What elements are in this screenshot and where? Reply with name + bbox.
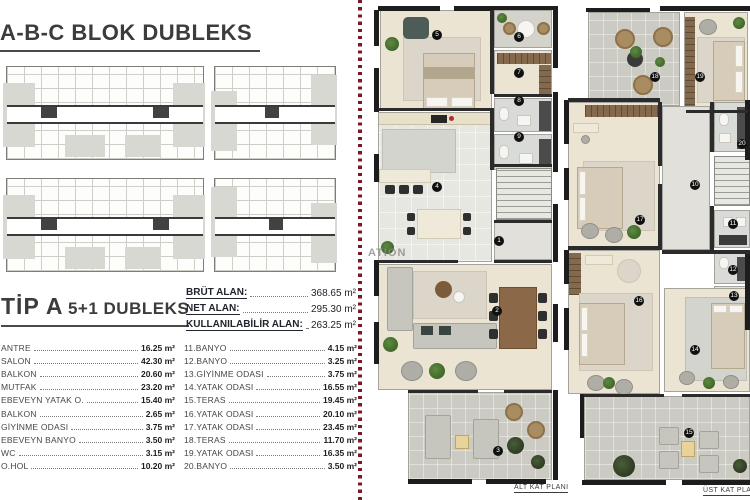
room-row: 14.YATAK ODASI16.55 m²	[184, 379, 357, 392]
room-label: EBEVEYN BANYO	[1, 435, 76, 445]
pillow	[713, 305, 727, 313]
room-label: GİYİNME ODASI	[1, 422, 68, 432]
coffee-table	[435, 281, 452, 298]
schematic-wing	[125, 135, 161, 157]
room-label: SALON	[1, 356, 31, 366]
dotted-leader	[267, 376, 325, 377]
room-label: BALKON	[1, 409, 37, 419]
toilet	[499, 107, 509, 121]
room-bath-11	[714, 210, 750, 248]
room-label: 11.BANYO	[184, 343, 227, 353]
room-lower-terrace	[408, 392, 552, 480]
rug	[413, 271, 487, 319]
dotted-leader	[71, 429, 142, 430]
wall	[660, 6, 686, 11]
room-bedroom-19	[684, 12, 748, 112]
dining-chair	[538, 293, 547, 303]
wall	[553, 92, 558, 172]
room-row: ANTRE16.25 m²	[1, 340, 175, 353]
wall	[568, 98, 660, 102]
wall	[504, 390, 552, 393]
room-label: O.HOL	[1, 461, 28, 471]
watermark-text: ATION	[368, 247, 406, 259]
wall	[745, 100, 750, 160]
wall	[658, 102, 662, 166]
armchair	[699, 19, 717, 35]
stat-row: NET ALAN: 295.30 m²	[186, 299, 356, 315]
schematic-plan-4	[214, 178, 336, 272]
plant	[733, 459, 747, 473]
sofa	[387, 267, 413, 331]
room-label: 18.TERAS	[184, 435, 226, 445]
wall	[553, 204, 558, 262]
room-list-right: 11.BANYO4.15 m² 12.BANYO3.25 m² 13.GİYİN…	[184, 340, 357, 471]
pillow	[426, 97, 448, 107]
room-label: 20.BANYO	[184, 461, 227, 471]
dining-chair	[489, 329, 498, 339]
wall	[553, 304, 558, 342]
room-area: 20.60 m²	[141, 369, 175, 379]
wardrobe	[685, 17, 695, 111]
dining-chair	[489, 293, 498, 303]
rattan-chair	[505, 403, 523, 421]
room-label: 16.YATAK ODASI	[184, 409, 253, 419]
room-row: SALON42.30 m²	[1, 353, 175, 366]
room-row: MUTFAK23.20 m²	[1, 379, 175, 392]
armchair	[723, 375, 739, 389]
wall	[686, 110, 748, 113]
dotted-leader	[230, 468, 325, 469]
room-area: 23.45 m²	[323, 422, 357, 432]
brochure-page: A-B-C BLOK DUBLEKS TİP A 5+1 DUBLEKS	[0, 0, 750, 500]
room-row: O.HOL10.20 m²	[1, 458, 175, 471]
pillow	[729, 305, 743, 313]
dotted-leader	[40, 376, 138, 377]
dotted-leader	[19, 455, 143, 456]
wall	[564, 100, 569, 144]
room-row: 19.YATAK ODASI16.35 m²	[184, 445, 357, 458]
wall	[710, 206, 714, 250]
wall	[586, 8, 650, 12]
room-area: 16.35 m²	[323, 448, 357, 458]
round-rug	[617, 259, 641, 283]
wall	[682, 480, 750, 485]
armchair	[679, 371, 695, 385]
type-title: TİP A 5+1 DUBLEKS	[1, 293, 189, 327]
staircase	[496, 168, 552, 220]
dotted-leader	[243, 312, 308, 313]
armchair	[403, 17, 429, 39]
plant	[497, 13, 507, 23]
room-number-badge: 14	[690, 345, 700, 355]
wall	[494, 94, 552, 97]
plant	[655, 57, 665, 67]
stat-label: BRÜT ALAN:	[186, 287, 247, 299]
outdoor-table	[455, 435, 469, 449]
plant	[385, 37, 399, 51]
pot	[449, 116, 454, 121]
toilet	[719, 113, 729, 126]
room-label: 15.TERAS	[184, 395, 226, 405]
dotted-leader	[40, 389, 138, 390]
wall	[568, 246, 660, 250]
room-label: 13.GİYİNME ODASI	[184, 369, 264, 379]
plant	[613, 455, 635, 477]
room-label: 14.YATAK ODASI	[184, 382, 253, 392]
wardrobe	[585, 105, 659, 117]
stat-value: 295.30 m²	[311, 304, 356, 315]
wall	[564, 168, 569, 200]
wall	[745, 250, 750, 330]
room-label: BALKON	[1, 369, 37, 379]
dotted-leader	[230, 350, 325, 351]
room-number-badge: 2	[492, 306, 502, 316]
page-title: A-B-C BLOK DUBLEKS	[0, 20, 260, 52]
room-area: 11.70 m²	[323, 435, 357, 445]
wall	[492, 6, 554, 10]
wall	[564, 250, 569, 284]
armchair	[605, 227, 623, 243]
wall	[662, 250, 750, 254]
stool	[581, 135, 590, 144]
room-number-badge: 12	[728, 265, 738, 275]
room-row: 16.YATAK ODASI20.10 m²	[184, 405, 357, 418]
plant	[630, 46, 642, 58]
wall	[408, 390, 478, 393]
room-number-badge: 10	[690, 180, 700, 190]
room-area: 3.25 m²	[328, 356, 357, 366]
wall	[686, 6, 750, 11]
room-number-badge: 7	[514, 68, 524, 78]
room-balcony-top	[494, 10, 552, 48]
stair-core	[153, 107, 169, 118]
room-upper-terrace-large	[584, 396, 750, 480]
room-master-bedroom	[380, 10, 492, 110]
room-row: GİYİNME ODASI3.75 m²	[1, 419, 175, 432]
bar-stool	[385, 185, 395, 194]
sink	[517, 115, 531, 126]
wall	[494, 220, 552, 223]
bed-throw	[423, 67, 475, 79]
sink	[719, 133, 731, 143]
plant	[733, 17, 745, 29]
wall	[494, 260, 552, 263]
plant	[627, 225, 641, 239]
outdoor-chair	[659, 451, 679, 469]
counter	[719, 235, 747, 245]
floor-plan-upper: 18 19 20 10 11 17 16 12 13 14 15	[564, 6, 750, 490]
dining-table-wood	[499, 287, 537, 349]
stair-core	[153, 219, 169, 230]
room-bedroom-14	[664, 288, 750, 392]
room-label: ANTRE	[1, 343, 31, 353]
room-upper-hall	[662, 106, 710, 250]
stat-value: 263.25 m²	[311, 320, 356, 331]
room-number-badge: 6	[514, 32, 524, 42]
side-table	[453, 291, 465, 303]
cabinet	[539, 139, 551, 167]
room-number-badge: 17	[635, 215, 645, 225]
wardrobe	[539, 65, 551, 95]
dining-chair	[538, 329, 547, 339]
room-number-badge: 8	[514, 96, 524, 106]
pillow	[735, 71, 743, 93]
room-bedroom-17	[568, 102, 660, 248]
pillow	[581, 333, 588, 357]
plant	[703, 377, 715, 389]
plant	[531, 455, 545, 469]
room-number-badge: 3	[493, 446, 503, 456]
wall	[374, 260, 379, 296]
wall	[580, 394, 584, 438]
room-row: BALKON20.60 m²	[1, 366, 175, 379]
armchair	[581, 223, 599, 239]
schematic-wing	[65, 247, 105, 269]
rattan-chair	[537, 22, 550, 35]
wall	[378, 108, 492, 111]
dotted-leader	[31, 468, 138, 469]
room-number-badge: 19	[695, 72, 705, 82]
dotted-leader	[40, 416, 143, 417]
schematic-corridor	[7, 217, 203, 236]
dotted-leader	[79, 442, 143, 443]
room-number-badge: 4	[432, 182, 442, 192]
pillow	[579, 171, 586, 195]
plant	[507, 437, 524, 454]
room-row: 20.BANYO3.50 m²	[184, 458, 357, 471]
wall	[378, 260, 458, 263]
stat-row: KULLANILABİLİR ALAN: 263.25 m²	[186, 315, 356, 331]
stat-label: NET ALAN:	[186, 303, 240, 315]
dining-chair	[463, 227, 471, 235]
bar-stool	[399, 185, 409, 194]
dotted-leader	[256, 455, 320, 456]
sofa-pillow	[439, 326, 451, 335]
dining-table	[417, 209, 461, 239]
room-number-badge: 1	[494, 236, 504, 246]
outdoor-chair	[659, 427, 679, 445]
outdoor-sofa	[425, 415, 451, 459]
dotted-leader	[87, 402, 138, 403]
room-number-badge: 16	[634, 296, 644, 306]
room-living	[378, 264, 552, 390]
outdoor-chair	[699, 455, 719, 473]
room-area: 42.30 m²	[141, 356, 175, 366]
room-row: WC3.15 m²	[1, 445, 175, 458]
toilet	[499, 145, 509, 159]
dotted-leader	[34, 363, 138, 364]
schematic-plan-3	[6, 178, 204, 272]
room-label: 12.BANYO	[184, 356, 227, 366]
sofa-pillow	[421, 326, 433, 335]
wardrobe	[497, 53, 551, 64]
wall	[682, 394, 750, 397]
dining-chair	[538, 311, 547, 321]
stat-row: BRÜT ALAN: 368.65 m²	[186, 283, 356, 299]
room-area: 3.50 m²	[146, 435, 175, 445]
vanity	[573, 123, 599, 133]
room-row: 15.TERAS19.45 m²	[184, 392, 357, 405]
room-row: EBEVEYN YATAK O.15.40 m²	[1, 392, 175, 405]
room-area: 16.25 m²	[141, 343, 175, 353]
wall	[378, 6, 440, 11]
dotted-leader	[250, 296, 308, 297]
schematic-plan-2	[214, 66, 336, 160]
dotted-leader	[229, 442, 321, 443]
pillow	[451, 97, 473, 107]
sink	[519, 153, 533, 164]
room-area: 4.15 m²	[328, 343, 357, 353]
room-number-badge: 9	[514, 132, 524, 142]
room-area: 19.45 m²	[323, 395, 357, 405]
room-row: 17.YATAK ODASI23.45 m²	[184, 419, 357, 432]
outdoor-chair	[699, 431, 719, 449]
bar-stool	[413, 185, 423, 194]
dotted-leader	[256, 389, 320, 390]
room-row: BALKON2.65 m²	[1, 405, 175, 418]
stat-value: 368.65 m²	[311, 288, 356, 299]
wall	[553, 390, 558, 480]
dotted-leader	[306, 328, 308, 329]
armchair	[401, 361, 423, 381]
outdoor-table	[681, 441, 695, 457]
dotted-leader	[229, 402, 320, 403]
room-label: WC	[1, 448, 16, 458]
room-bedroom-16	[568, 250, 660, 394]
plant	[383, 337, 398, 352]
dotted-leader	[256, 429, 320, 430]
wall	[454, 6, 492, 11]
room-label: MUTFAK	[1, 382, 37, 392]
schematic-wing	[125, 247, 161, 269]
stat-label: KULLANILABİLİR ALAN:	[186, 319, 303, 331]
schematic-wing	[65, 135, 105, 157]
rattan-chair	[653, 27, 673, 47]
plant	[429, 363, 445, 379]
vanity	[585, 255, 613, 265]
room-list-left: ANTRE16.25 m² SALON42.30 m² BALKON20.60 …	[1, 340, 175, 471]
stair-core	[265, 107, 279, 118]
room-row: EBEVEYN BANYO3.50 m²	[1, 432, 175, 445]
room-label: EBEVEYN YATAK O.	[1, 395, 84, 405]
room-number-badge: 11	[728, 219, 738, 229]
room-area: 23.20 m²	[141, 382, 175, 392]
type-title-rest: 5+1 DUBLEKS	[68, 299, 189, 318]
schematic-corridor	[7, 105, 203, 124]
plant	[603, 377, 615, 389]
shower	[539, 101, 551, 131]
wall	[584, 394, 664, 397]
stair-core	[269, 219, 283, 230]
room-row: 18.TERAS11.70 m²	[184, 432, 357, 445]
wall	[374, 322, 379, 364]
room-area: 3.50 m²	[328, 461, 357, 471]
cooktop	[431, 115, 447, 123]
room-upper-terrace-small	[588, 12, 680, 106]
rattan-chair	[615, 29, 635, 49]
dining-chair	[407, 213, 415, 221]
dotted-leader	[256, 416, 320, 417]
wall	[408, 479, 472, 484]
wardrobe	[569, 253, 581, 295]
dotted-leader	[34, 350, 138, 351]
room-area: 16.55 m²	[323, 382, 357, 392]
pillow	[735, 45, 743, 67]
kitchen-island	[379, 169, 431, 183]
room-label: 19.YATAK ODASI	[184, 448, 253, 458]
area-stats: BRÜT ALAN: 368.65 m² NET ALAN: 295.30 m²…	[186, 283, 356, 331]
wall	[374, 10, 379, 46]
wall	[658, 184, 662, 250]
upper-plan-caption: ÜST KAT PLANI	[703, 487, 750, 496]
room-number-badge: 13	[729, 291, 739, 301]
pillow	[581, 307, 588, 331]
wall	[490, 10, 494, 94]
room-label: 17.YATAK ODASI	[184, 422, 253, 432]
pillow	[579, 197, 586, 221]
stair-core	[41, 219, 57, 230]
room-area: 3.75 m²	[146, 422, 175, 432]
room-row: 13.GİYİNME ODASI3.75 m²	[184, 366, 357, 379]
floor-plan-lower: 5 6 7 8 9 4 1 2 3	[374, 6, 558, 484]
wall	[553, 6, 558, 68]
room-row: 11.BANYO4.15 m²	[184, 340, 357, 353]
room-area: 3.75 m²	[328, 369, 357, 379]
room-area: 20.10 m²	[323, 409, 357, 419]
type-title-main: TİP A	[1, 293, 64, 319]
dining-chair	[407, 227, 415, 235]
wall	[374, 68, 379, 112]
kitchen-rug	[382, 129, 456, 173]
wall	[490, 108, 494, 170]
rattan-chair	[527, 421, 545, 439]
room-number-badge: 5	[432, 30, 442, 40]
room-area: 3.15 m²	[146, 448, 175, 458]
wall	[582, 480, 666, 485]
room-number-badge: 20	[737, 139, 747, 149]
stair-core	[41, 107, 57, 118]
staircase	[714, 156, 750, 206]
wall	[494, 164, 552, 167]
wall	[564, 308, 569, 350]
room-area: 2.65 m²	[146, 409, 175, 419]
room-number-badge: 15	[684, 428, 694, 438]
lower-plan-caption: ALT KAT PLANI	[514, 484, 568, 493]
wall	[374, 154, 379, 182]
schematic-plan-1	[6, 66, 204, 160]
armchair	[455, 361, 477, 381]
room-number-badge: 18	[650, 72, 660, 82]
armchair	[615, 379, 633, 395]
room-area: 15.40 m²	[141, 395, 175, 405]
room-row: 12.BANYO3.25 m²	[184, 353, 357, 366]
dotted-leader	[230, 363, 325, 364]
red-dotted-divider	[358, 0, 362, 500]
room-area: 10.20 m²	[141, 461, 175, 471]
dining-chair	[463, 213, 471, 221]
